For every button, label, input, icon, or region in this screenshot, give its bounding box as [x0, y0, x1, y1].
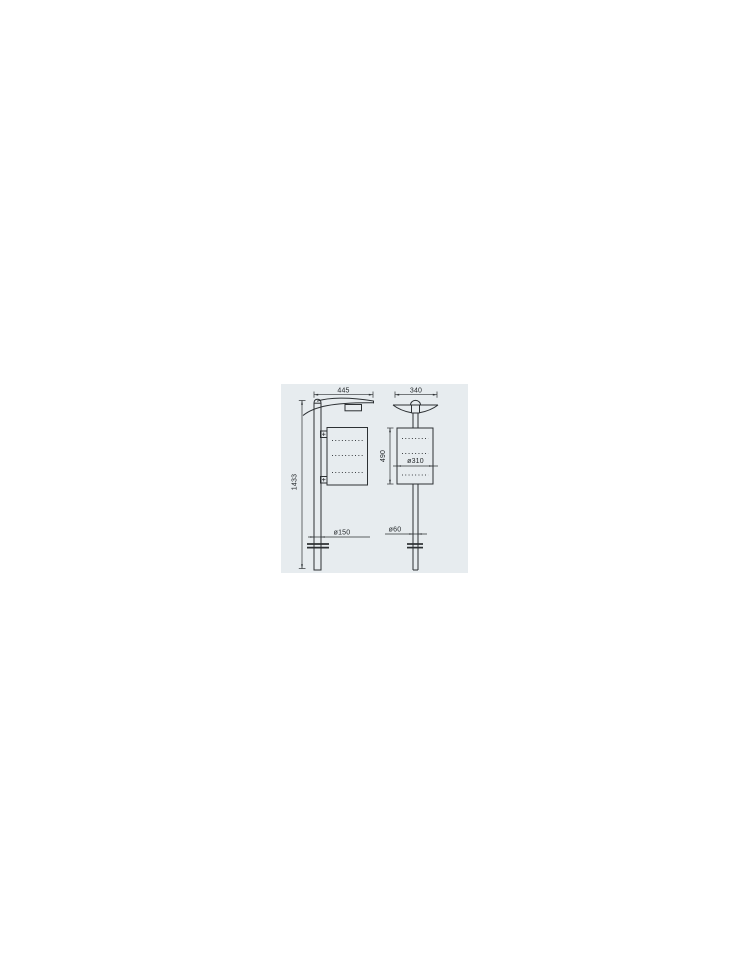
arrowhead-up [389, 428, 391, 432]
side-view: 445 1433 [292, 388, 374, 570]
bin-perforations-side [332, 441, 364, 473]
arrowhead-right [369, 394, 373, 396]
bin-perforations-front [402, 439, 429, 476]
arrowhead-left [418, 533, 422, 535]
dim-bin-height: 490 [380, 428, 394, 484]
dim-label-bin-diameter: ø310 [407, 458, 424, 465]
dim-arm-width: 445 [314, 388, 373, 398]
page-background: 445 1433 [0, 0, 750, 962]
litter-bin-dimension-drawing: 445 1433 [281, 384, 468, 573]
dim-label-canopy-width: 340 [410, 388, 422, 395]
dim-bin-diameter: ø310 [393, 458, 438, 467]
arrowhead-right [409, 533, 413, 535]
arrowhead-left [395, 394, 399, 396]
dim-label-base-diameter: ø150 [334, 530, 351, 537]
bin-body-side [327, 428, 368, 486]
arrowhead-right [310, 536, 314, 538]
dim-overall-height: 1433 [292, 401, 306, 569]
arrowhead-down [389, 480, 391, 484]
technical-drawing-panel: 445 1433 [281, 384, 468, 573]
dim-label-arm-width: 445 [337, 388, 349, 395]
ground-collar-side [307, 544, 329, 548]
front-view: 340 [380, 388, 438, 570]
dim-label-bin-height: 490 [380, 450, 387, 462]
arrowhead-down [301, 564, 303, 568]
arrowhead-right [429, 465, 433, 467]
arrowhead-right [433, 394, 437, 396]
arrowhead-left [321, 536, 325, 538]
arrowhead-left [314, 394, 318, 396]
arrowhead-left [397, 465, 401, 467]
dim-canopy-width: 340 [395, 388, 437, 398]
ground-collar-front [407, 544, 423, 548]
pole-front-upper [413, 413, 418, 428]
arm-mounted-box [345, 405, 362, 411]
dim-post-diameter: ø60 [385, 527, 427, 535]
canopy-front [393, 400, 438, 413]
pole-front-lower [413, 485, 418, 571]
bin-body-front [397, 428, 433, 484]
dim-label-post-diameter: ø60 [389, 527, 402, 534]
dim-label-overall-height: 1433 [292, 474, 299, 490]
dim-base-diameter: ø150 [308, 530, 370, 538]
arrowhead-up [301, 401, 303, 405]
